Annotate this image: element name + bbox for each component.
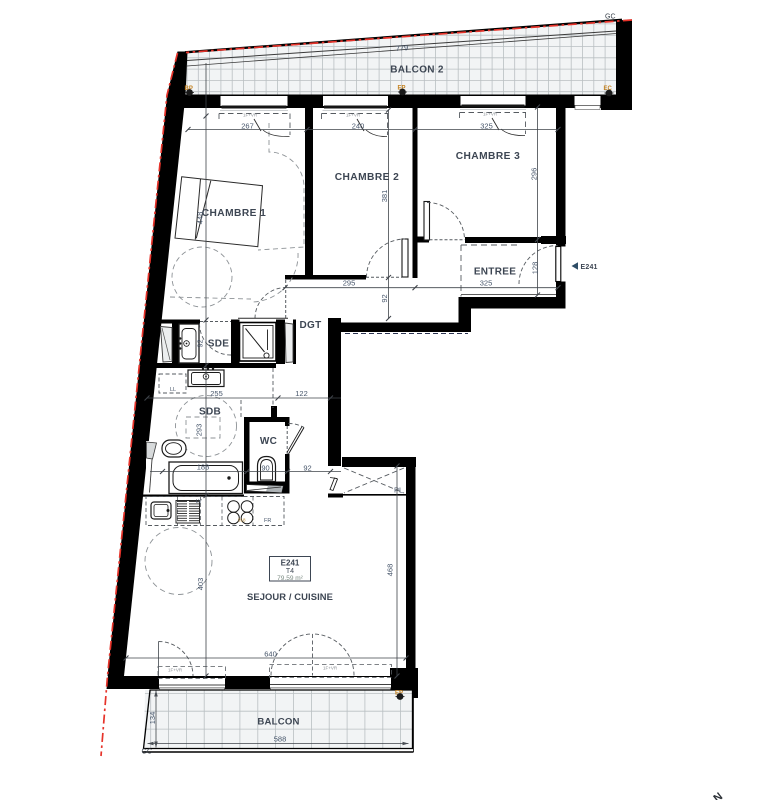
svg-text:92: 92 bbox=[380, 294, 389, 302]
svg-text:E241: E241 bbox=[581, 264, 598, 271]
svg-text:325: 325 bbox=[480, 279, 493, 288]
svg-text:293: 293 bbox=[195, 424, 204, 437]
svg-text:240: 240 bbox=[352, 122, 365, 131]
svg-text:PL: PL bbox=[394, 486, 403, 495]
svg-text:1F+VR: 1F+VR bbox=[346, 113, 361, 118]
svg-text:SDE: SDE bbox=[208, 339, 229, 350]
svg-text:BALCON: BALCON bbox=[257, 717, 299, 728]
svg-text:1F+VR: 1F+VR bbox=[168, 668, 183, 673]
svg-text:DGT: DGT bbox=[299, 320, 321, 331]
svg-text:267: 267 bbox=[241, 122, 254, 131]
svg-text:468: 468 bbox=[386, 564, 395, 577]
svg-text:ENTREE: ENTREE bbox=[474, 267, 516, 278]
svg-text:GC: GC bbox=[142, 749, 153, 756]
svg-text:CHAMBRE 1: CHAMBRE 1 bbox=[202, 208, 267, 219]
svg-text:SEJOUR / CUISINE: SEJOUR / CUISINE bbox=[247, 591, 333, 602]
svg-text:188: 188 bbox=[197, 463, 210, 472]
svg-text:GC: GC bbox=[605, 14, 616, 21]
svg-text:255: 255 bbox=[210, 389, 223, 398]
svg-text:296: 296 bbox=[530, 168, 539, 181]
svg-text:CHAMBRE 2: CHAMBRE 2 bbox=[335, 172, 400, 183]
svg-text:588: 588 bbox=[274, 735, 287, 744]
svg-text:CHAMBRE 3: CHAMBRE 3 bbox=[456, 151, 521, 162]
svg-text:122: 122 bbox=[295, 389, 308, 398]
svg-text:403: 403 bbox=[196, 578, 205, 591]
svg-text:79.59 m²: 79.59 m² bbox=[277, 575, 303, 582]
svg-text:325: 325 bbox=[480, 122, 493, 131]
svg-text:1F+VR: 1F+VR bbox=[243, 113, 258, 118]
svg-text:BALCON 2: BALCON 2 bbox=[390, 65, 444, 76]
svg-text:779: 779 bbox=[395, 43, 408, 53]
svg-text:WC: WC bbox=[260, 436, 277, 447]
svg-text:90: 90 bbox=[261, 464, 269, 473]
svg-text:295: 295 bbox=[343, 279, 356, 288]
svg-text:SDB: SDB bbox=[199, 407, 221, 418]
svg-text:1F+VR: 1F+VR bbox=[323, 666, 338, 671]
svg-text:LV: LV bbox=[196, 499, 202, 505]
svg-text:381: 381 bbox=[380, 190, 389, 203]
svg-text:1F+VR: 1F+VR bbox=[483, 112, 498, 117]
svg-text:128: 128 bbox=[531, 262, 540, 275]
svg-text:918: 918 bbox=[238, 518, 246, 523]
svg-text:92: 92 bbox=[303, 464, 311, 473]
svg-text:E241: E241 bbox=[281, 559, 300, 568]
svg-text:448: 448 bbox=[196, 212, 205, 225]
svg-text:134: 134 bbox=[148, 712, 157, 725]
svg-text:640: 640 bbox=[264, 650, 277, 659]
svg-text:92: 92 bbox=[196, 339, 205, 347]
svg-text:FR: FR bbox=[264, 518, 271, 524]
svg-text:LL: LL bbox=[170, 387, 176, 393]
